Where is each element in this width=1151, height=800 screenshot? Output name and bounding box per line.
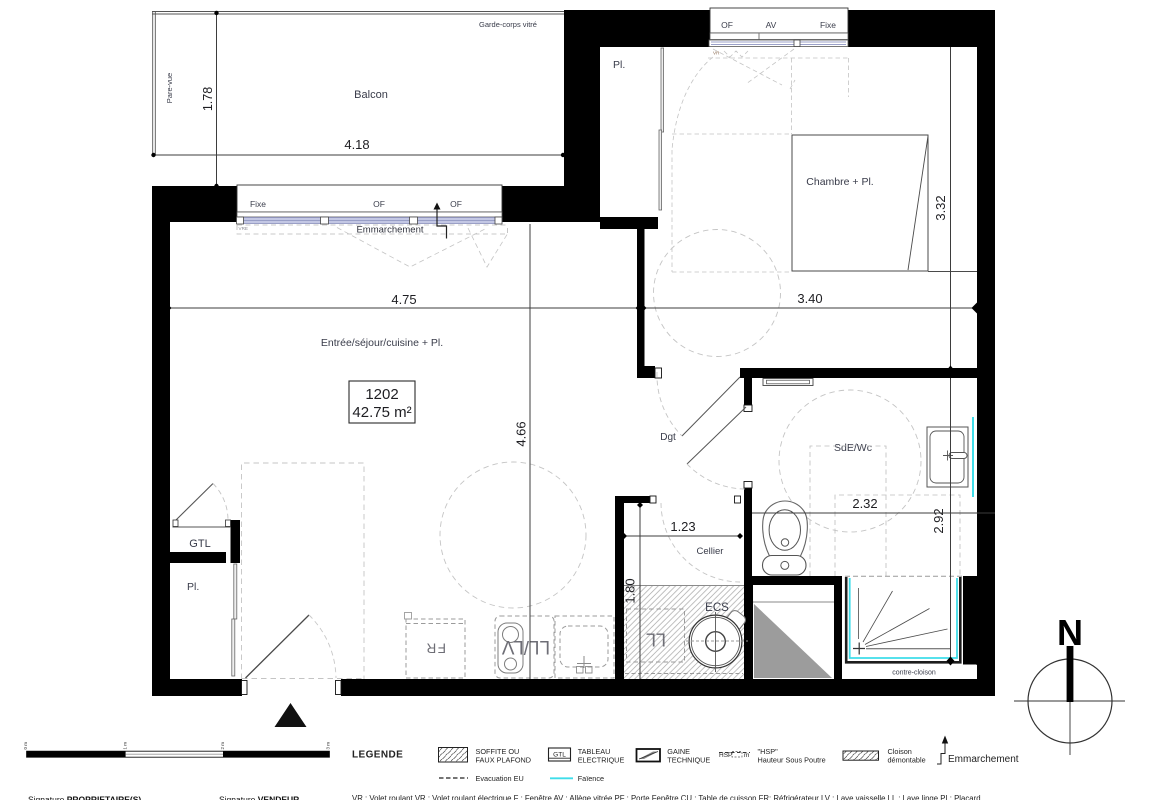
svg-text:Chambre + Pl.: Chambre + Pl. <box>806 176 873 188</box>
svg-text:ELECTRIQUE: ELECTRIQUE <box>578 756 625 765</box>
svg-text:HSP: HSP <box>719 752 732 759</box>
svg-text:3 m: 3 m <box>326 742 331 750</box>
svg-text:1.23: 1.23 <box>670 519 695 534</box>
svg-text:OF: OF <box>373 199 385 209</box>
svg-text:VR : Volet roulant VR : Vole: VR : Volet roulant VR : Volet roulant él… <box>352 794 981 800</box>
svg-text:Signature PROPRIETAIRE(S): Signature PROPRIETAIRE(S) <box>28 794 141 800</box>
svg-text:Pl.: Pl. <box>613 59 625 71</box>
svg-text:SdE/Wc: SdE/Wc <box>834 442 872 454</box>
svg-text:VRE: VRE <box>239 226 248 231</box>
svg-text:LEGENDE: LEGENDE <box>352 750 403 761</box>
svg-text:4.75: 4.75 <box>391 292 416 307</box>
svg-text:LL/LV: LL/LV <box>502 636 551 657</box>
svg-text:Entrée/séjour/cuisine + Pl.: Entrée/séjour/cuisine + Pl. <box>321 337 443 349</box>
svg-text:3.40: 3.40 <box>797 291 822 306</box>
svg-text:N: N <box>1057 612 1083 653</box>
svg-text:Fixe: Fixe <box>250 199 266 209</box>
svg-text:OF: OF <box>450 199 462 209</box>
svg-text:Faïence: Faïence <box>578 774 604 783</box>
svg-text:Evacuation EU: Evacuation EU <box>476 774 524 783</box>
svg-text:1.80: 1.80 <box>623 578 638 603</box>
svg-text:Dgt: Dgt <box>660 432 676 443</box>
svg-text:Signature VENDEUR: Signature VENDEUR <box>219 794 299 800</box>
svg-text:3.32: 3.32 <box>933 195 948 220</box>
svg-text:m: m <box>744 752 749 759</box>
svg-text:Pl.: Pl. <box>187 581 199 593</box>
svg-text:2 m: 2 m <box>220 742 225 750</box>
svg-text:4.66: 4.66 <box>514 421 529 446</box>
svg-text:1 m: 1 m <box>123 742 128 750</box>
svg-text:42.75 m²: 42.75 m² <box>352 404 411 421</box>
svg-text:Cellier: Cellier <box>697 546 724 557</box>
svg-text:FAUX PLAFOND: FAUX PLAFOND <box>476 756 532 765</box>
svg-text:OF: OF <box>721 20 733 30</box>
svg-text:1202: 1202 <box>365 386 398 403</box>
svg-text:Fixe: Fixe <box>820 20 836 30</box>
svg-text:contre-cloison: contre-cloison <box>892 670 936 677</box>
svg-text:0 m: 0 m <box>23 742 28 750</box>
svg-text:Emmarchement: Emmarchement <box>356 225 423 236</box>
svg-text:ECS: ECS <box>705 602 729 614</box>
svg-text:TECHNIQUE: TECHNIQUE <box>667 756 710 765</box>
svg-text:Hauteur Sous Poutre: Hauteur Sous Poutre <box>758 756 826 765</box>
svg-text:4.18: 4.18 <box>344 137 369 152</box>
svg-text:1.78: 1.78 <box>201 87 215 111</box>
svg-text:2.32: 2.32 <box>852 496 877 511</box>
svg-text:GTL: GTL <box>189 538 210 550</box>
svg-text:Balcon: Balcon <box>354 89 388 101</box>
svg-text:FR: FR <box>425 641 446 656</box>
svg-text:Emmarchement: Emmarchement <box>948 754 1019 765</box>
svg-text:AV: AV <box>766 20 777 30</box>
svg-text:LL: LL <box>646 630 666 650</box>
svg-text:Garde-corps vitré: Garde-corps vitré <box>479 20 537 29</box>
svg-text:démontable: démontable <box>888 756 926 765</box>
svg-text:GTL: GTL <box>553 752 566 759</box>
svg-text:2.92: 2.92 <box>931 508 946 533</box>
svg-text:Pare-vue: Pare-vue <box>165 73 174 103</box>
